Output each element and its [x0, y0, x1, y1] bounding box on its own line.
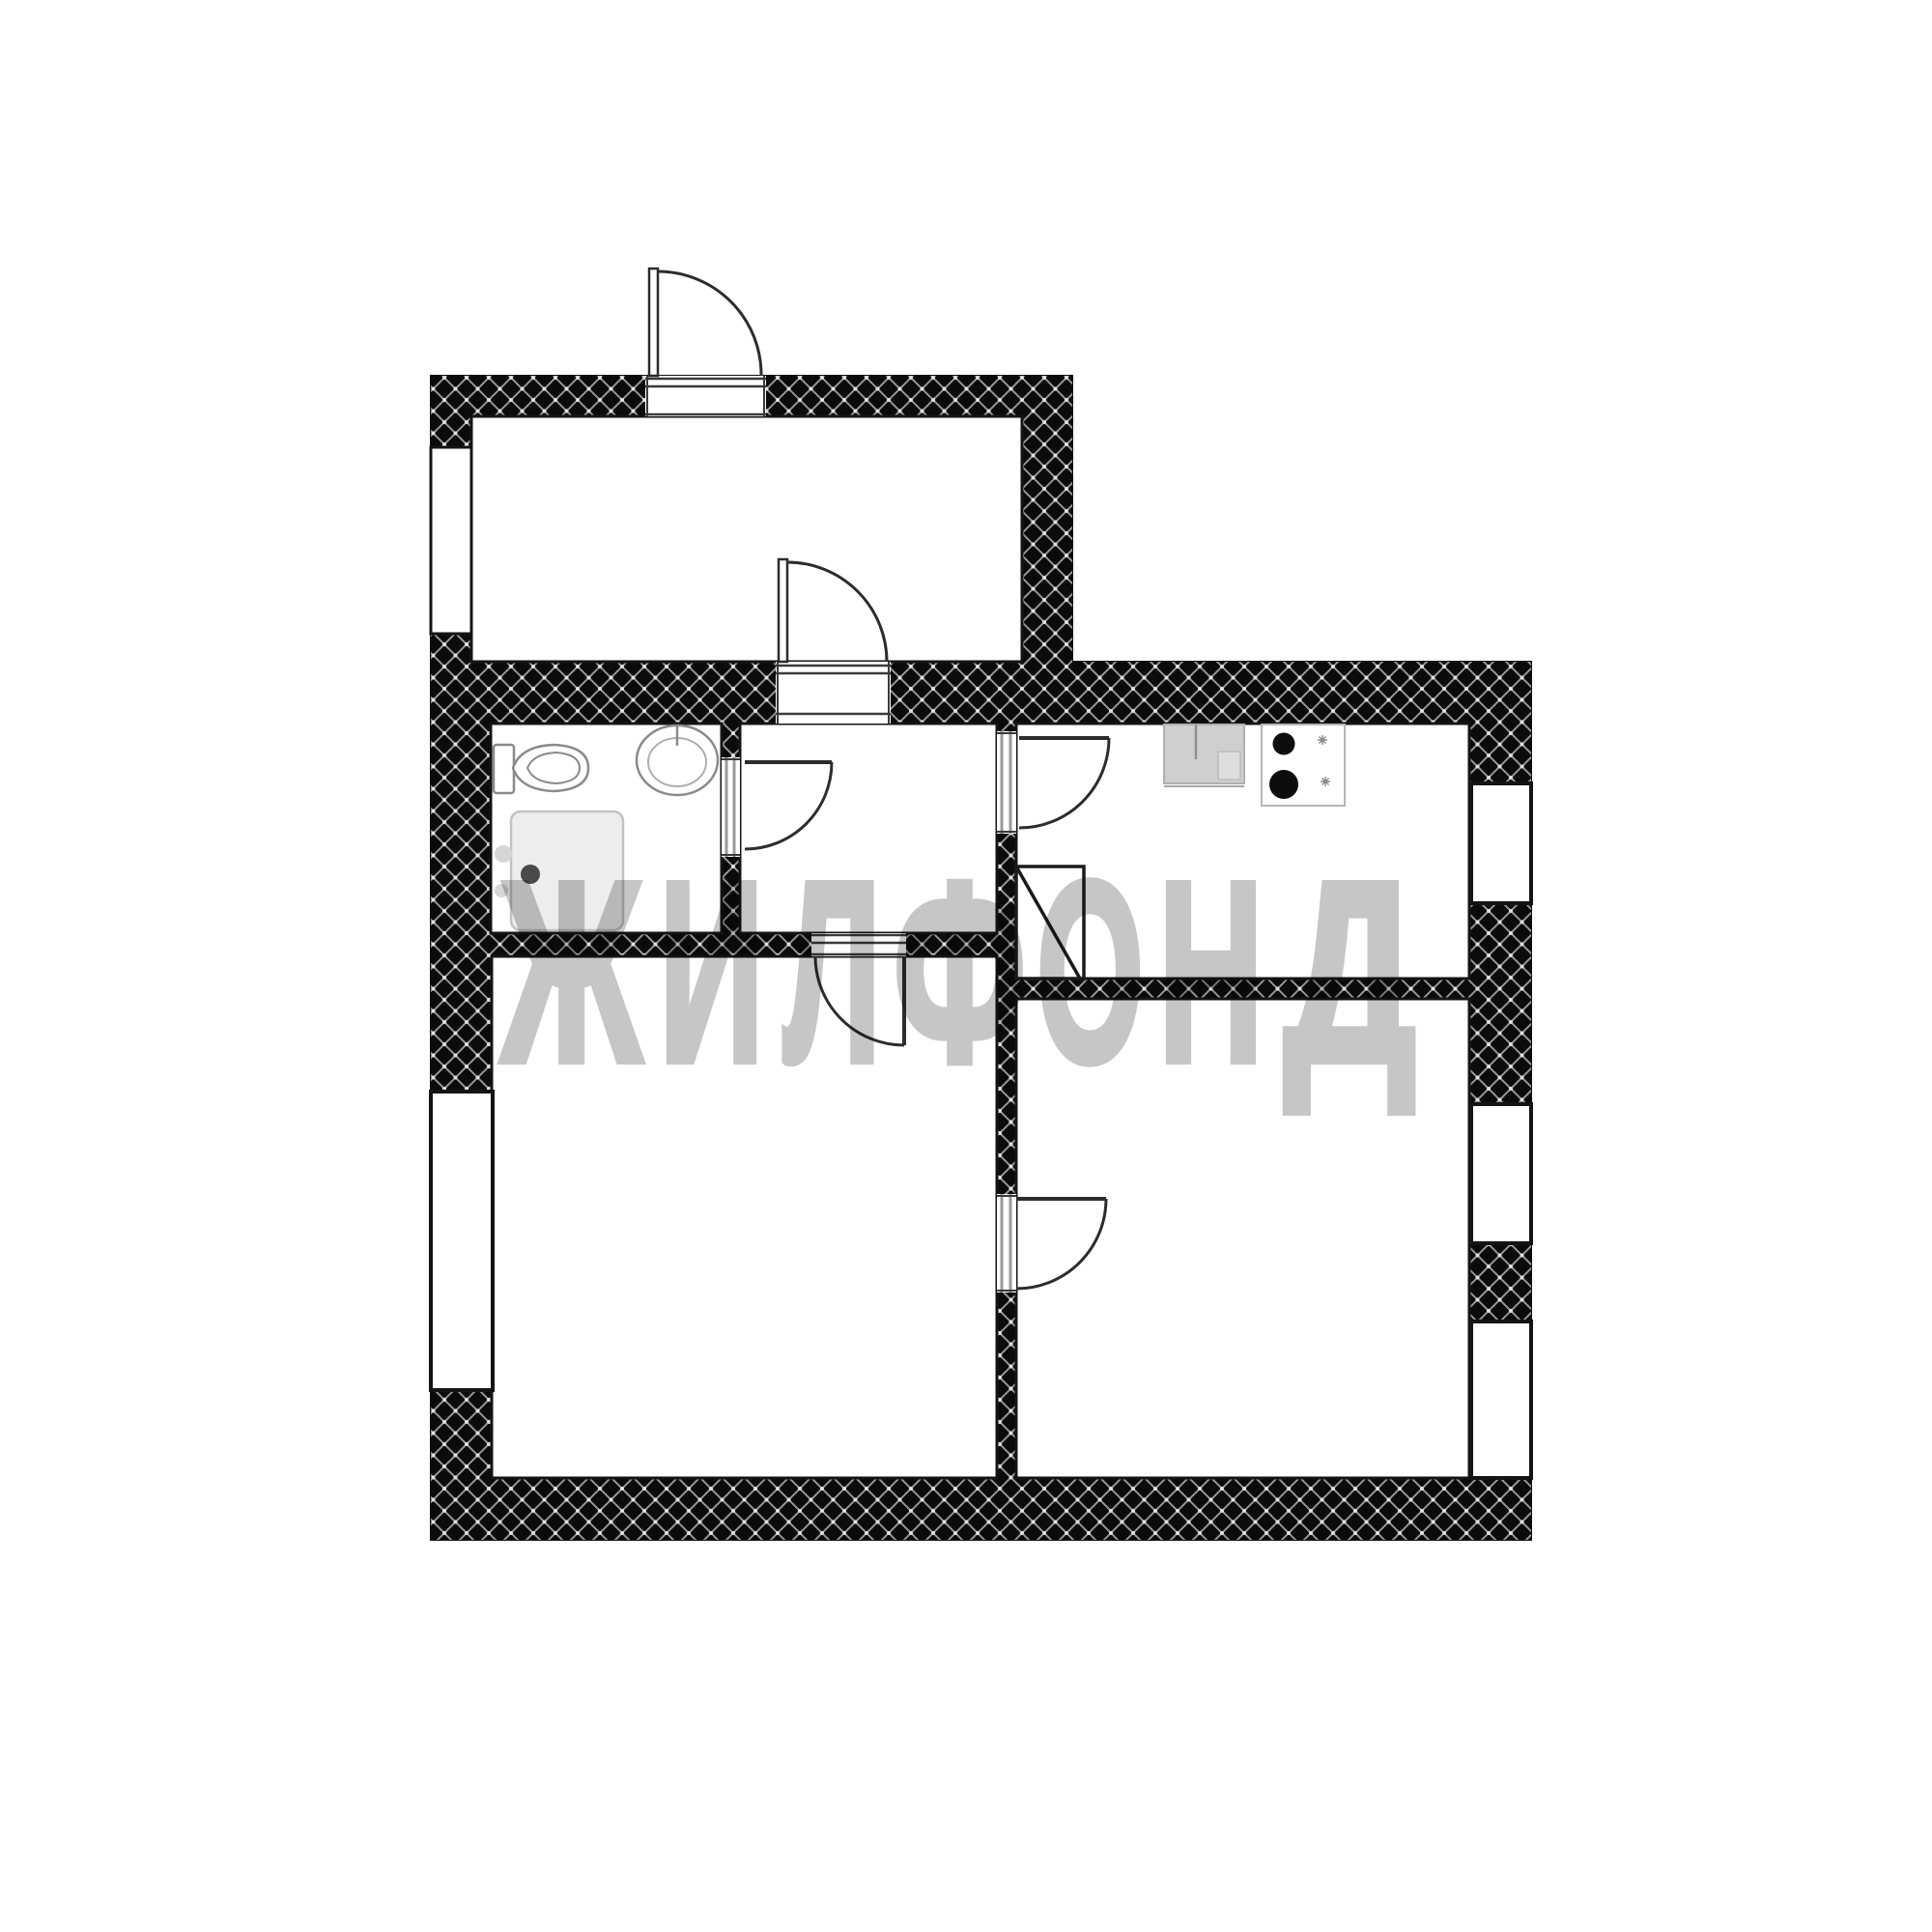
- svg-text:И: И: [659, 829, 764, 1116]
- svg-text:Л: Л: [783, 829, 881, 1116]
- svg-text:Н: Н: [1158, 829, 1264, 1116]
- svg-text:О: О: [1037, 829, 1144, 1116]
- svg-text:Ж: Ж: [498, 829, 643, 1116]
- svg-text:Д: Д: [1284, 829, 1416, 1116]
- svg-text:Ф: Ф: [894, 829, 1026, 1116]
